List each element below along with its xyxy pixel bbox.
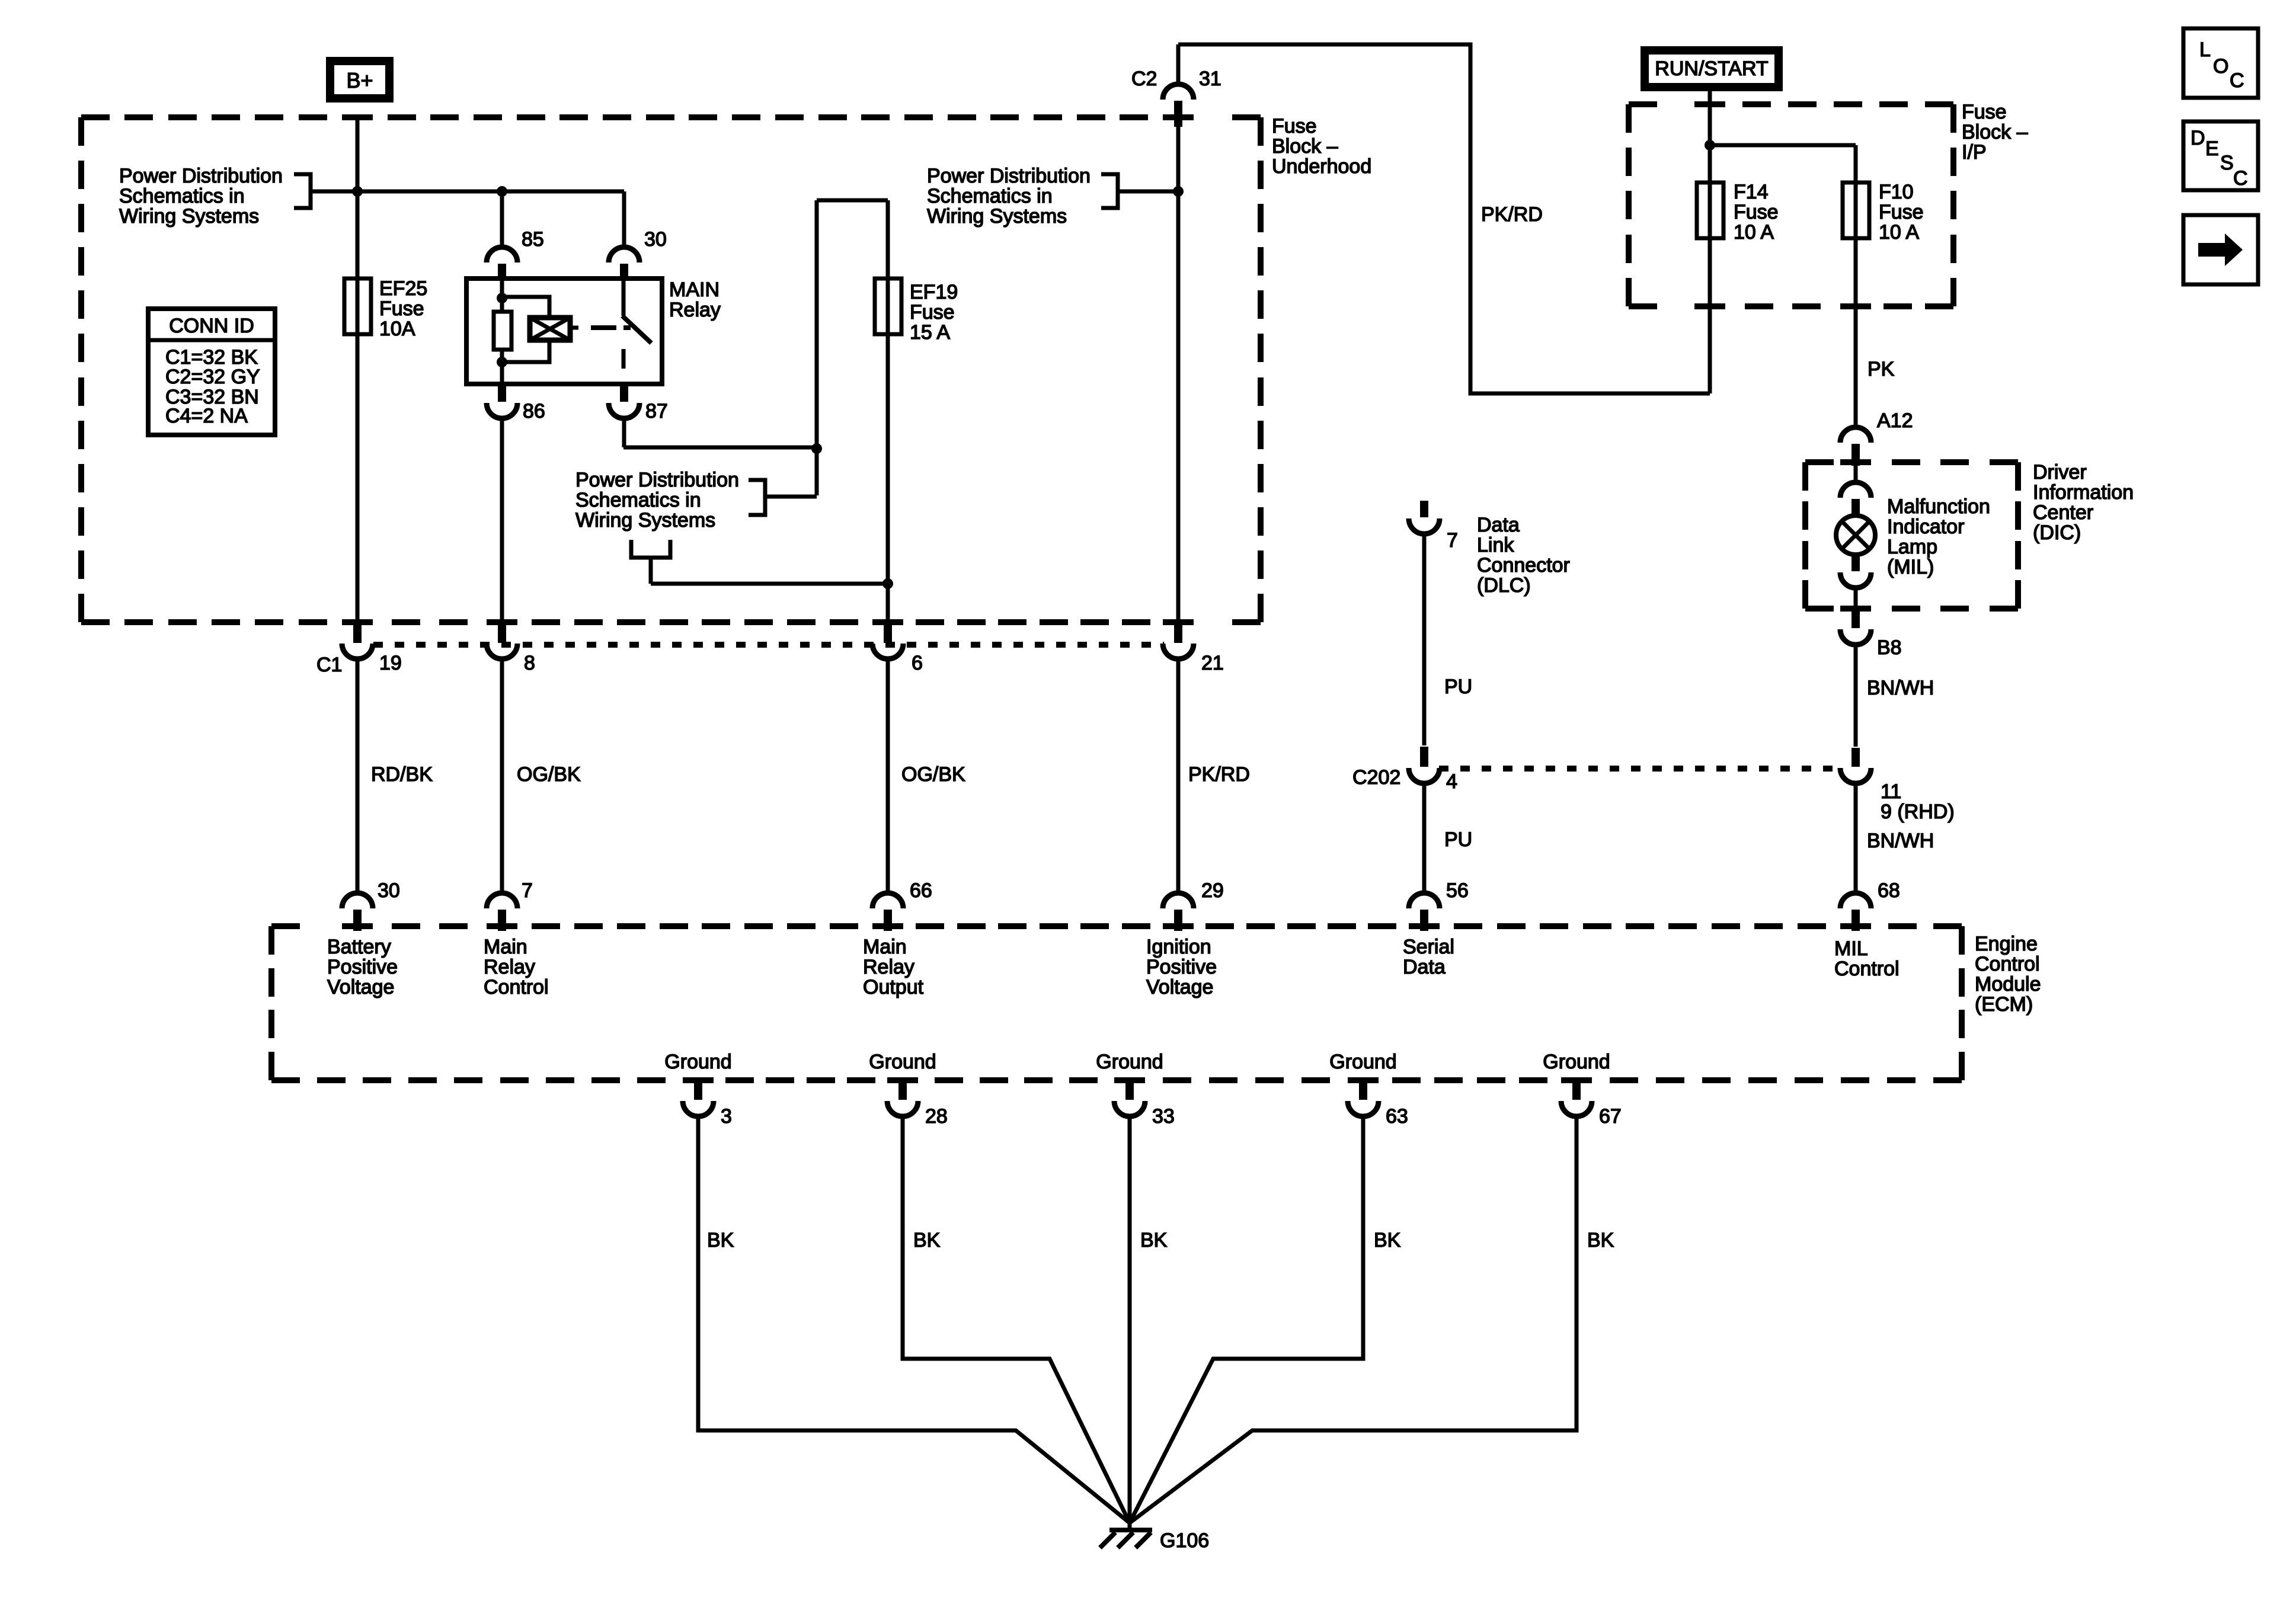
svg-text:B8: B8 — [1877, 636, 1902, 659]
svg-text:C2: C2 — [1131, 68, 1157, 90]
svg-text:C1: C1 — [316, 654, 342, 676]
svg-text:C: C — [2230, 69, 2244, 92]
svg-text:8: 8 — [524, 652, 535, 674]
svg-text:30: 30 — [644, 228, 667, 251]
svg-text:CONN ID: CONN ID — [169, 315, 254, 337]
svg-text:BK: BK — [1374, 1229, 1401, 1251]
svg-text:IgnitionPositiveVoltage: IgnitionPositiveVoltage — [1146, 936, 1217, 998]
svg-text:21: 21 — [1201, 652, 1224, 674]
svg-text:S: S — [2220, 152, 2234, 174]
svg-text:RUN/START: RUN/START — [1655, 57, 1768, 80]
svg-text:BN/WH: BN/WH — [1867, 830, 1934, 852]
svg-text:4: 4 — [1446, 770, 1457, 793]
svg-text:Ground: Ground — [1329, 1051, 1396, 1073]
svg-text:PU: PU — [1444, 676, 1472, 698]
svg-text:33: 33 — [1152, 1105, 1175, 1128]
svg-text:PK/RD: PK/RD — [1188, 763, 1250, 786]
svg-text:28: 28 — [925, 1105, 948, 1128]
svg-text:7: 7 — [522, 879, 533, 902]
svg-text:E: E — [2205, 137, 2219, 160]
svg-text:86: 86 — [523, 400, 545, 422]
svg-text:BatteryPositiveVoltage: BatteryPositiveVoltage — [327, 936, 398, 998]
svg-text:67: 67 — [1599, 1105, 1622, 1128]
svg-text:66: 66 — [910, 879, 932, 902]
svg-text:68: 68 — [1878, 879, 1900, 902]
svg-text:L: L — [2199, 39, 2211, 61]
svg-text:BK: BK — [707, 1229, 734, 1251]
svg-text:A12: A12 — [1877, 409, 1913, 432]
svg-text:87: 87 — [645, 400, 668, 422]
svg-text:Ground: Ground — [1096, 1051, 1163, 1073]
svg-text:Ground: Ground — [1543, 1051, 1610, 1073]
svg-text:19: 19 — [379, 652, 402, 674]
svg-text:BK: BK — [1587, 1229, 1614, 1251]
svg-text:C202: C202 — [1352, 766, 1400, 789]
svg-text:BN/WH: BN/WH — [1867, 677, 1934, 699]
svg-text:30: 30 — [378, 879, 400, 902]
svg-text:Ground: Ground — [664, 1051, 731, 1073]
svg-text:Ground: Ground — [869, 1051, 936, 1073]
svg-text:63: 63 — [1386, 1105, 1408, 1128]
svg-text:PK/RD: PK/RD — [1481, 203, 1543, 226]
svg-text:3: 3 — [721, 1105, 732, 1128]
svg-text:6: 6 — [912, 652, 923, 674]
svg-text:C: C — [2233, 167, 2248, 190]
svg-text:85: 85 — [522, 228, 544, 251]
svg-text:31: 31 — [1199, 68, 1221, 90]
svg-text:MAINRelay: MAINRelay — [669, 279, 721, 321]
svg-text:O: O — [2213, 55, 2228, 78]
svg-text:BK: BK — [1140, 1229, 1168, 1251]
svg-text:EngineControlModule(ECM): EngineControlModule(ECM) — [1975, 933, 2041, 1016]
svg-text:29: 29 — [1201, 879, 1224, 902]
svg-text:56: 56 — [1446, 879, 1469, 902]
svg-text:7: 7 — [1447, 529, 1458, 552]
svg-text:OG/BK: OG/BK — [517, 763, 581, 786]
svg-text:G106: G106 — [1160, 1529, 1209, 1552]
svg-text:C4=2 NA: C4=2 NA — [165, 405, 248, 427]
svg-text:PU: PU — [1444, 828, 1472, 851]
svg-text:C2=32 GY: C2=32 GY — [165, 366, 260, 388]
svg-text:D: D — [2191, 127, 2205, 149]
svg-text:BK: BK — [913, 1229, 941, 1251]
svg-text:PK: PK — [1868, 358, 1895, 380]
svg-text:OG/BK: OG/BK — [901, 763, 965, 786]
svg-text:B+: B+ — [346, 68, 373, 92]
svg-text:RD/BK: RD/BK — [371, 763, 433, 786]
